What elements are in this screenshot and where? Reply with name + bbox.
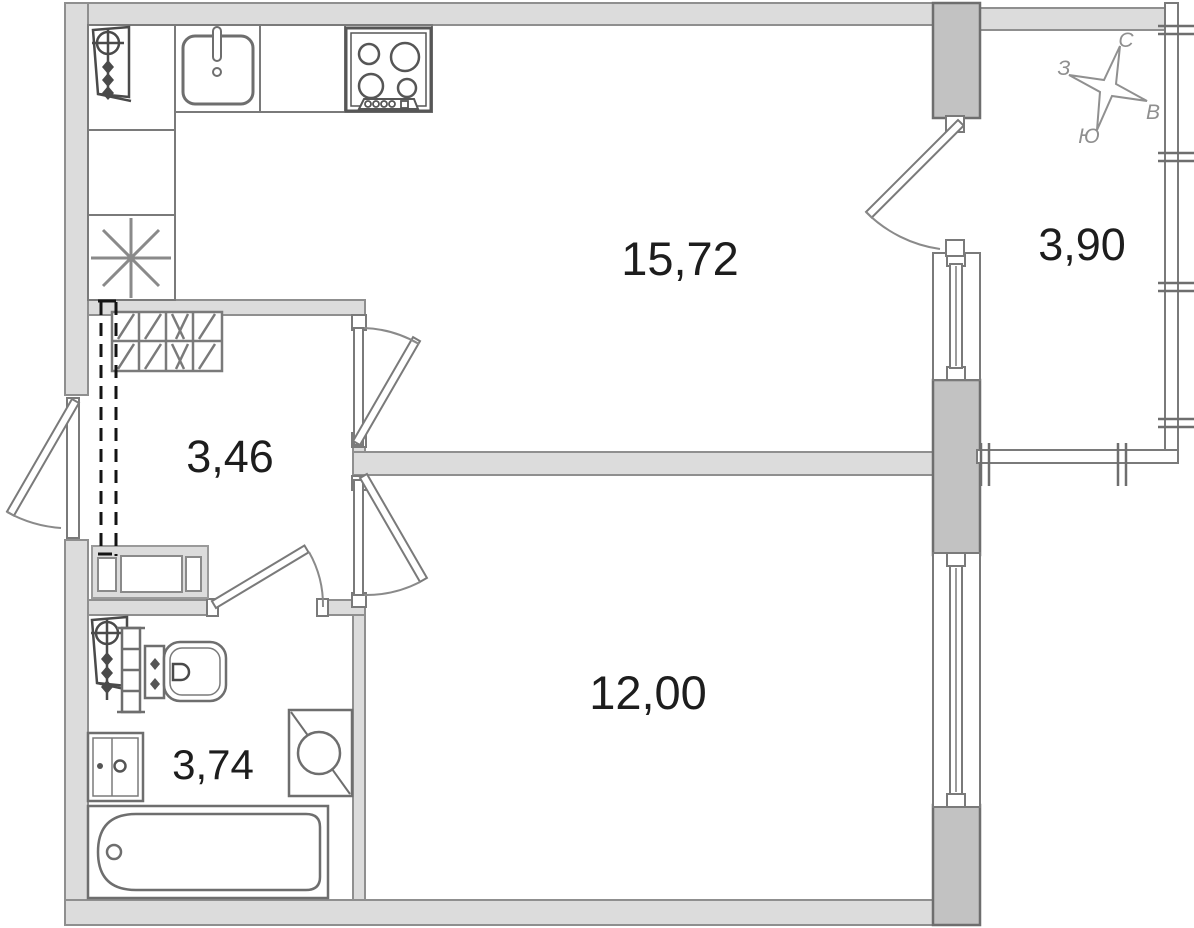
bedroom-door-closed-leaf — [354, 480, 363, 595]
compass-south-label: Ю — [1078, 125, 1099, 148]
bathroom-top-wall-left — [88, 600, 215, 615]
bedroom-door — [352, 474, 427, 607]
bathtub-icon — [88, 806, 328, 898]
wardrobe-icon — [112, 312, 222, 371]
window-cap — [947, 794, 965, 807]
bathroom-door — [207, 546, 328, 616]
bath-bedroom-wall — [353, 595, 365, 900]
bedroom-door-leaf — [360, 474, 427, 582]
balcony-door-swing-arc — [866, 212, 940, 249]
floor-plan: С В Ю З 15,72 3,46 3,74 12,00 3,90 — [0, 0, 1194, 928]
living-bedroom-divider — [353, 452, 935, 475]
bedroom-window — [933, 553, 980, 807]
bathroom-area-label: 3,74 — [172, 741, 254, 788]
pilaster-middle — [933, 380, 980, 555]
vanity-icon — [88, 733, 143, 801]
compass-west-label: З — [1058, 57, 1071, 80]
heating-riser-kitchen-icon — [92, 27, 131, 101]
left-wall-upper — [65, 3, 88, 395]
fridge-icon — [91, 218, 171, 298]
window-cap — [947, 553, 965, 566]
balcony-door-leaf — [866, 120, 964, 218]
toilet-icon — [145, 642, 226, 701]
balcony-glazing-bottom — [977, 450, 1178, 463]
towel-rail-icon — [117, 628, 145, 712]
compass-star — [1069, 46, 1147, 130]
sink-icon — [183, 27, 253, 104]
floor-plan-svg: С В Ю З 15,72 3,46 3,74 12,00 3,90 — [0, 0, 1194, 928]
compass-rose-icon: С В Ю З — [1058, 29, 1160, 148]
compass-north-label: С — [1118, 29, 1134, 52]
door-jamb — [946, 240, 964, 256]
pilaster-top — [933, 3, 980, 118]
living-kitchen-area-label: 15,72 — [621, 232, 739, 285]
entrance-door — [7, 398, 79, 538]
bedroom-area-label: 12,00 — [589, 666, 707, 719]
balcony-door — [866, 116, 964, 256]
compass-east-label: В — [1146, 101, 1160, 124]
balcony-glazing-right — [1165, 3, 1178, 462]
bathroom-door-leaf — [212, 546, 309, 608]
washing-machine-icon — [289, 710, 352, 796]
hallway-area-label: 3,46 — [186, 431, 274, 482]
bedroom-door-swing-arc — [364, 582, 420, 595]
stove-icon — [346, 28, 431, 111]
top-wall — [65, 3, 935, 25]
balcony-top-wall — [977, 8, 1165, 30]
left-wall-lower — [65, 540, 88, 925]
living-room-door — [352, 315, 420, 447]
bottom-wall — [65, 900, 980, 925]
living-room-window — [933, 253, 980, 380]
pilaster-bottom — [933, 805, 980, 925]
balcony-area-label: 3,90 — [1038, 219, 1126, 270]
